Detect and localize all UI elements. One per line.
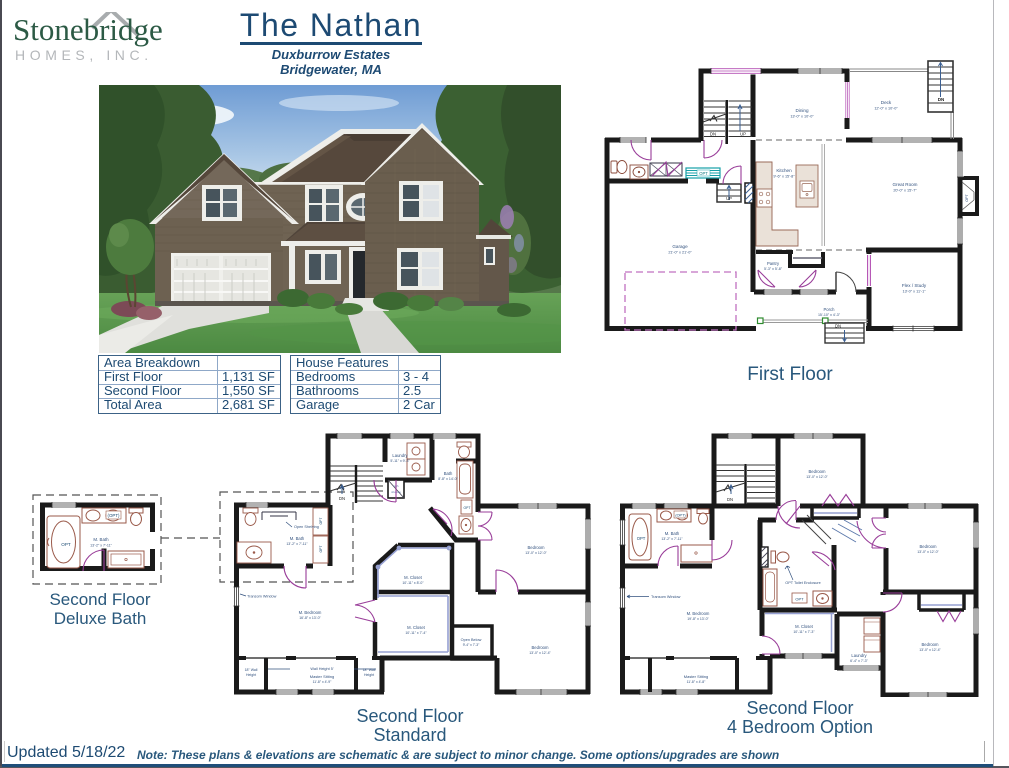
svg-text:15'-10" x 4'-3": 15'-10" x 4'-3" [818, 313, 841, 317]
svg-text:OPT: OPT [965, 194, 969, 202]
svg-text:Bedroom: Bedroom [809, 469, 827, 474]
svg-text:Transom Window: Transom Window [247, 595, 277, 599]
svg-text:DN: DN [727, 497, 733, 502]
svg-text:Pantry: Pantry [767, 261, 780, 266]
svg-text:13'-2" x 7'-11": 13'-2" x 7'-11" [661, 537, 683, 541]
svg-text:M. Closet: M. Closet [407, 625, 426, 630]
svg-text:UP: UP [740, 132, 746, 137]
svg-text:(OPT): (OPT) [108, 513, 120, 518]
svg-text:13'-2" x 7'-11": 13'-2" x 7'-11" [286, 542, 308, 546]
svg-text:Deck: Deck [881, 100, 892, 105]
svg-text:Transom Window: Transom Window [651, 595, 681, 599]
svg-text:13'-0" x 12'-0": 13'-0" x 12'-0" [917, 550, 939, 554]
svg-text:11'-8" x 4'-9": 11'-8" x 4'-9" [313, 680, 333, 684]
svg-text:12'-0" x 10'-0": 12'-0" x 10'-0" [874, 107, 898, 111]
svg-text:Bedroom: Bedroom [532, 645, 550, 650]
svg-text:13'-2" x 7'-11": 13'-2" x 7'-11" [90, 544, 113, 548]
svg-text:18" Wall: 18" Wall [363, 668, 376, 672]
svg-text:9'-4" x 7'-3": 9'-4" x 7'-3" [463, 643, 480, 647]
svg-text:Wall Height 5': Wall Height 5' [310, 667, 333, 671]
svg-text:M. Bath: M. Bath [290, 536, 305, 541]
svg-text:Flex / Study: Flex / Study [902, 283, 927, 288]
svg-text:Bedroom: Bedroom [922, 642, 940, 647]
svg-text:Dining: Dining [795, 108, 808, 113]
svg-text:Garage: Garage [672, 244, 688, 249]
svg-text:Height: Height [246, 673, 256, 677]
svg-text:Open Shelving: Open Shelving [294, 525, 319, 529]
svg-text:9'-6" x 15'-8": 9'-6" x 15'-8" [773, 175, 795, 179]
svg-text:11'-8" x 4'-8": 11'-8" x 4'-8" [687, 680, 707, 684]
svg-text:Master Sitting: Master Sitting [310, 674, 334, 679]
svg-text:OPT: OPT [699, 171, 708, 176]
svg-text:DN: DN [710, 132, 716, 137]
svg-text:Great Room: Great Room [892, 182, 917, 187]
svg-text:13'-0" x 12'-4": 13'-0" x 12'-4" [919, 648, 941, 652]
svg-text:19'-8" x 13'-0": 19'-8" x 13'-0" [687, 617, 709, 621]
svg-text:M. Closet: M. Closet [404, 575, 423, 580]
svg-text:OPT Toilet Enclosure: OPT Toilet Enclosure [785, 581, 821, 585]
svg-text:M. Bath: M. Bath [665, 531, 680, 536]
svg-text:M. Closet: M. Closet [795, 624, 814, 629]
svg-text:Master Sitting: Master Sitting [684, 674, 708, 679]
svg-text:OPT: OPT [319, 518, 323, 525]
svg-text:21'-0" x 21'-0": 21'-0" x 21'-0" [668, 251, 692, 255]
svg-text:OPT: OPT [637, 536, 646, 541]
svg-text:13'-0" x 10'-0": 13'-0" x 10'-0" [790, 115, 814, 119]
svg-text:DN: DN [835, 323, 841, 328]
svg-text:10'-11" x 7'-3": 10'-11" x 7'-3" [793, 630, 815, 634]
svg-text:13'-0" x 12'-0": 13'-0" x 12'-0" [525, 551, 547, 555]
svg-text:Kitchen: Kitchen [776, 168, 792, 173]
svg-text:5'-11" x 9'-3": 5'-11" x 9'-3" [390, 459, 410, 463]
svg-text:10'-11" x 8'-0": 10'-11" x 8'-0" [402, 581, 424, 585]
svg-text:13'-0" x 12'-0": 13'-0" x 12'-0" [806, 475, 828, 479]
svg-text:OPT: OPT [61, 542, 71, 547]
svg-text:(OPT): (OPT) [675, 514, 686, 518]
svg-text:13'-0" x 11'-1": 13'-0" x 11'-1" [902, 290, 926, 294]
svg-text:Bedroom: Bedroom [528, 545, 546, 550]
svg-text:OPT: OPT [795, 597, 804, 602]
svg-text:8'-8" x 14'-0": 8'-8" x 14'-0" [438, 477, 458, 481]
svg-text:DN: DN [938, 97, 945, 102]
svg-text:5'-3" x 5'-8": 5'-3" x 5'-8" [764, 267, 783, 271]
svg-text:OPT: OPT [464, 506, 471, 510]
svg-text:Bedroom: Bedroom [920, 544, 938, 549]
svg-text:M. Bedroom: M. Bedroom [299, 610, 322, 615]
svg-text:Porch: Porch [824, 307, 836, 312]
svg-text:M. Bedroom: M. Bedroom [687, 611, 710, 616]
svg-text:Open Below: Open Below [461, 638, 482, 642]
svg-text:Height: Height [364, 673, 374, 677]
svg-text:Laundry: Laundry [851, 653, 867, 658]
svg-text:6'-4" x 7'-3": 6'-4" x 7'-3" [850, 659, 868, 663]
svg-text:13'-0" x 12'-4": 13'-0" x 12'-4" [529, 651, 551, 655]
svg-text:Laundry: Laundry [392, 453, 408, 458]
svg-text:OPT: OPT [319, 546, 323, 553]
svg-text:UP: UP [726, 196, 732, 201]
svg-text:M. Bath: M. Bath [93, 537, 109, 542]
svg-text:Bath: Bath [444, 471, 453, 476]
svg-text:10'-11" x 7'-4": 10'-11" x 7'-4" [405, 631, 427, 635]
svg-text:18" Wall: 18" Wall [245, 668, 258, 672]
svg-text:20'-0" x 15'-7": 20'-0" x 15'-7" [893, 189, 917, 193]
svg-text:DN: DN [339, 496, 345, 501]
svg-text:16'-8" x 13'-0": 16'-8" x 13'-0" [299, 616, 321, 620]
